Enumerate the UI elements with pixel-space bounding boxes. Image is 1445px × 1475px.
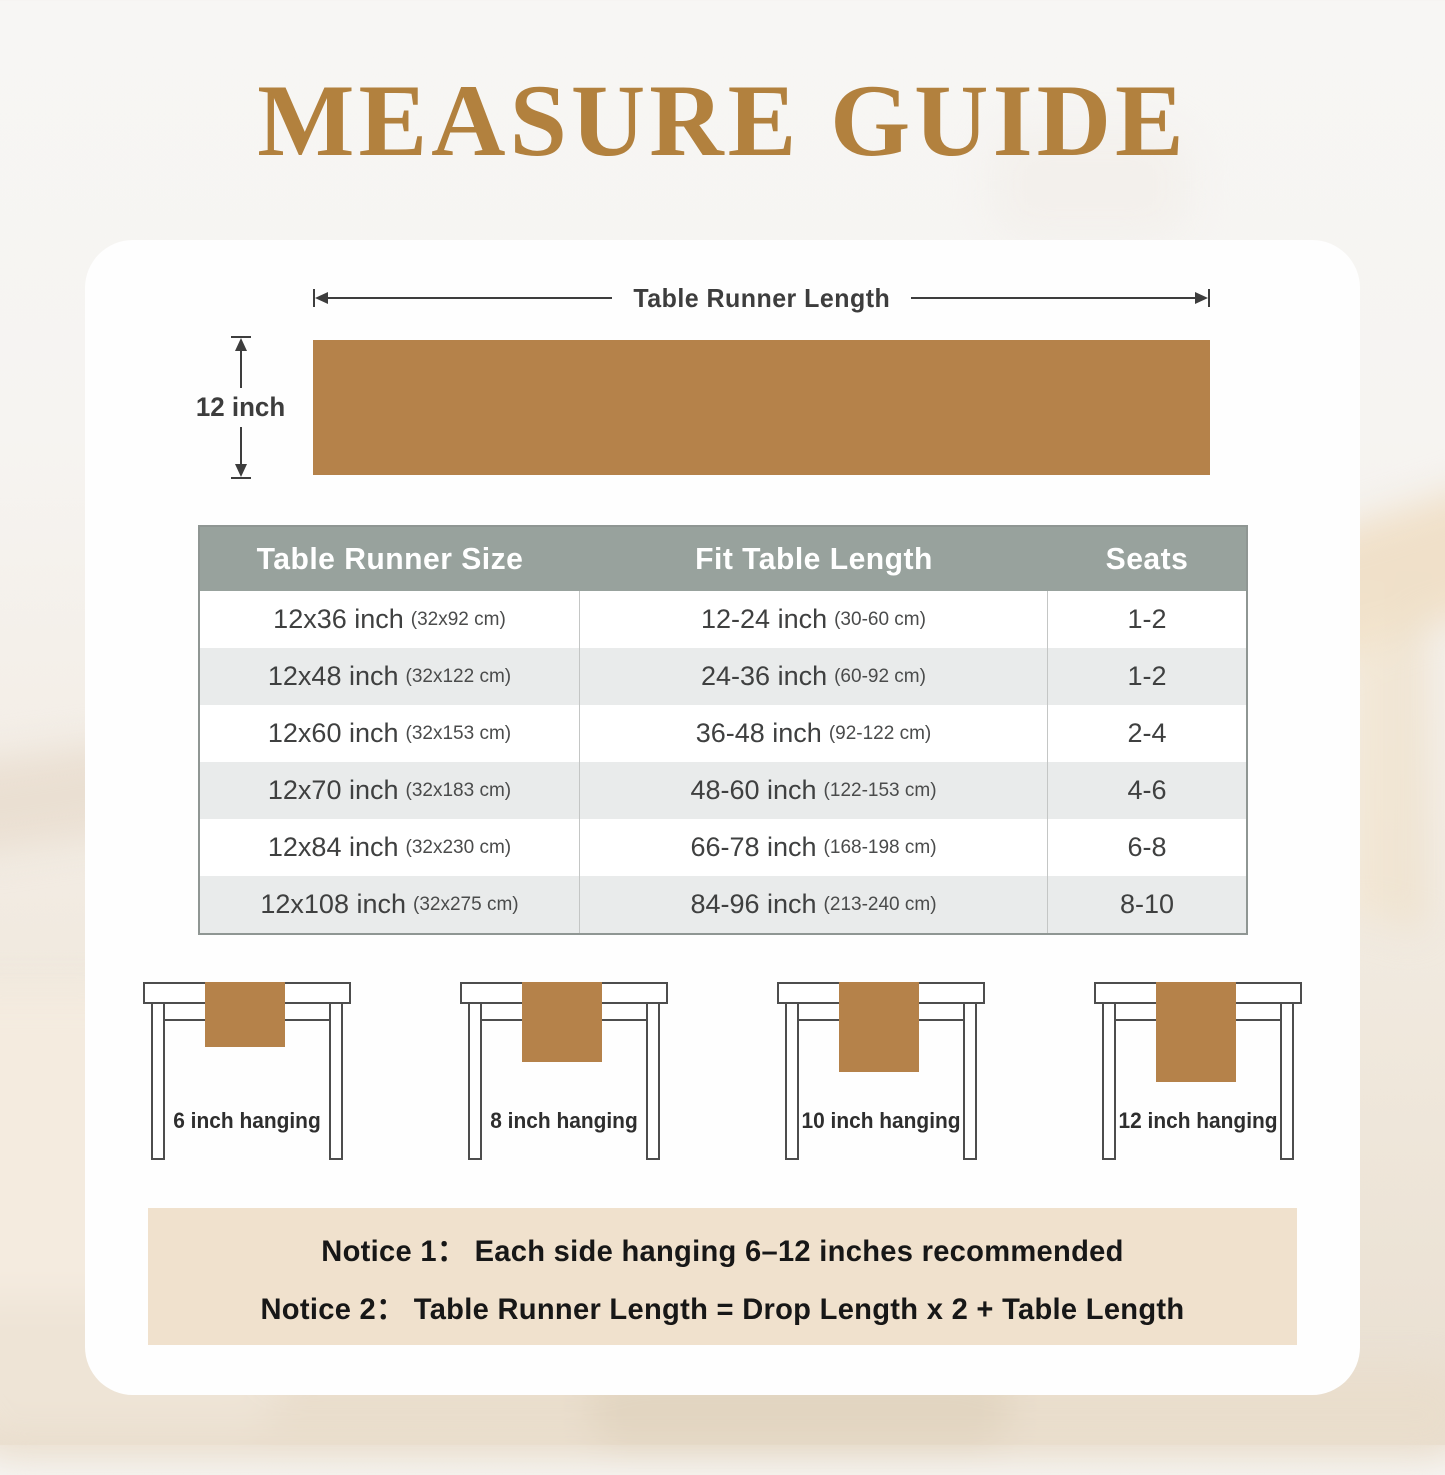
- fit-cm-value: (30-60 cm): [834, 609, 926, 631]
- arrow-right-icon: [1195, 292, 1208, 304]
- fit-value: 36-48 inch: [696, 718, 822, 749]
- runner-drape: [205, 982, 285, 1047]
- height-dimension-indicator: 12 inch: [185, 336, 297, 479]
- fit-value: 12-24 inch: [701, 604, 827, 635]
- table-leg: [963, 1004, 977, 1160]
- dimension-tick: [1208, 289, 1210, 307]
- size-value: 12x108 inch: [260, 889, 406, 920]
- dimension-line: [240, 351, 242, 388]
- cell-runner-size: 12x108 inch(32x275 cm): [200, 876, 580, 933]
- size-cm-value: (32x183 cm): [406, 780, 512, 802]
- fit-cm-value: (122-153 cm): [824, 780, 937, 802]
- cell-fit-length: 84-96 inch(213-240 cm): [580, 876, 1048, 933]
- cell-fit-length: 66-78 inch(168-198 cm): [580, 819, 1048, 876]
- table-figure-10-inch: 10 inch hanging: [777, 982, 985, 1170]
- blurred-chair-slat: [1395, 570, 1421, 930]
- length-dimension-label: Table Runner Length: [618, 283, 906, 314]
- dimension-line: [911, 297, 1195, 299]
- arrow-down-icon: [235, 464, 247, 477]
- table-leg: [785, 1004, 799, 1160]
- table-row: 12x60 inch(32x153 cm) 36-48 inch(92-122 …: [200, 705, 1246, 762]
- cell-runner-size: 12x70 inch(32x183 cm): [200, 762, 580, 819]
- cell-runner-size: 12x36 inch(32x92 cm): [200, 591, 580, 648]
- fit-cm-value: (92-122 cm): [829, 723, 931, 745]
- table-leg: [646, 1004, 660, 1160]
- size-cm-value: (32x153 cm): [406, 723, 512, 745]
- column-header-fit-length: Fit Table Length: [587, 541, 1041, 577]
- cell-seats: 1-2: [1048, 648, 1246, 705]
- notice-box: Notice 1： Each side hanging 6–12 inches …: [148, 1208, 1297, 1345]
- length-dimension-indicator: Table Runner Length: [313, 284, 1210, 312]
- size-value: 12x36 inch: [273, 604, 404, 635]
- dimension-tick: [231, 477, 251, 479]
- cell-seats: 2-4: [1048, 705, 1246, 762]
- height-dimension-label: 12 inch: [196, 388, 285, 427]
- cell-seats: 4-6: [1048, 762, 1246, 819]
- table-leg: [1102, 1004, 1116, 1160]
- fit-value: 24-36 inch: [701, 661, 827, 692]
- column-header-runner-size: Table Runner Size: [206, 541, 575, 577]
- cell-fit-length: 36-48 inch(92-122 cm): [580, 705, 1048, 762]
- size-table-header-row: Table Runner Size Fit Table Length Seats: [200, 527, 1246, 591]
- cell-runner-size: 12x84 inch(32x230 cm): [200, 819, 580, 876]
- cell-seats: 8-10: [1048, 876, 1246, 933]
- cell-runner-size: 12x48 inch(32x122 cm): [200, 648, 580, 705]
- size-table: Table Runner Size Fit Table Length Seats…: [198, 525, 1248, 935]
- table-row: 12x84 inch(32x230 cm) 66-78 inch(168-198…: [200, 819, 1246, 876]
- table-figure-12-inch: 12 inch hanging: [1094, 982, 1302, 1170]
- table-figure-6-inch: 6 inch hanging: [143, 982, 351, 1170]
- table-runner-swatch: [313, 340, 1210, 475]
- size-cm-value: (32x275 cm): [413, 894, 519, 916]
- hanging-label: 8 inch hanging: [465, 1108, 663, 1134]
- notice-line-1: Notice 1： Each side hanging 6–12 inches …: [165, 1226, 1280, 1270]
- fit-cm-value: (213-240 cm): [824, 894, 937, 916]
- runner-drape: [1156, 982, 1236, 1082]
- table-row: 12x70 inch(32x183 cm) 48-60 inch(122-153…: [200, 762, 1246, 819]
- runner-drape: [522, 982, 602, 1062]
- notice-line-2: Notice 2： Table Runner Length = Drop Len…: [165, 1284, 1280, 1328]
- content-card: Table Runner Length 12 inch Table Runner…: [85, 240, 1360, 1395]
- size-value: 12x70 inch: [268, 775, 399, 806]
- table-figure-8-inch: 8 inch hanging: [460, 982, 668, 1170]
- runner-drape: [839, 982, 919, 1072]
- fit-value: 84-96 inch: [690, 889, 816, 920]
- table-row: 12x36 inch(32x92 cm) 12-24 inch(30-60 cm…: [200, 591, 1246, 648]
- cell-seats: 1-2: [1048, 591, 1246, 648]
- cell-seats: 6-8: [1048, 819, 1246, 876]
- hanging-illustrations: 6 inch hanging 8 inch hanging 10 inch ha…: [85, 982, 1360, 1170]
- size-value: 12x48 inch: [268, 661, 399, 692]
- table-row: 12x48 inch(32x122 cm) 24-36 inch(60-92 c…: [200, 648, 1246, 705]
- hanging-label: 10 inch hanging: [782, 1108, 980, 1134]
- size-cm-value: (32x92 cm): [411, 609, 506, 631]
- table-row: 12x108 inch(32x275 cm) 84-96 inch(213-24…: [200, 876, 1246, 933]
- dimension-line: [240, 427, 242, 464]
- cell-fit-length: 24-36 inch(60-92 cm): [580, 648, 1048, 705]
- fit-cm-value: (168-198 cm): [824, 837, 937, 859]
- hanging-label: 12 inch hanging: [1099, 1108, 1297, 1134]
- cell-fit-length: 12-24 inch(30-60 cm): [580, 591, 1048, 648]
- page-title: MEASURE GUIDE: [0, 62, 1445, 180]
- arrow-left-icon: [315, 292, 328, 304]
- cell-runner-size: 12x60 inch(32x153 cm): [200, 705, 580, 762]
- cell-fit-length: 48-60 inch(122-153 cm): [580, 762, 1048, 819]
- table-leg: [151, 1004, 165, 1160]
- table-leg: [329, 1004, 343, 1160]
- dimension-line: [328, 297, 612, 299]
- size-cm-value: (32x230 cm): [406, 837, 512, 859]
- fit-value: 48-60 inch: [690, 775, 816, 806]
- fit-value: 66-78 inch: [690, 832, 816, 863]
- size-value: 12x84 inch: [268, 832, 399, 863]
- table-leg: [468, 1004, 482, 1160]
- column-header-seats: Seats: [1051, 541, 1243, 577]
- size-value: 12x60 inch: [268, 718, 399, 749]
- fit-cm-value: (60-92 cm): [834, 666, 926, 688]
- size-cm-value: (32x122 cm): [406, 666, 512, 688]
- arrow-up-icon: [235, 338, 247, 351]
- hanging-label: 6 inch hanging: [148, 1108, 346, 1134]
- table-leg: [1280, 1004, 1294, 1160]
